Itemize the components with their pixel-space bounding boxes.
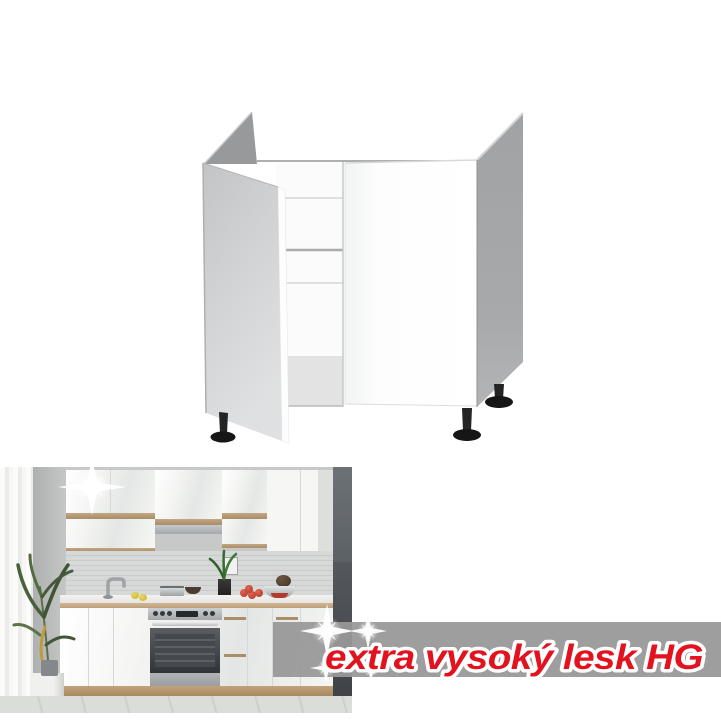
counter-plant <box>210 551 236 579</box>
promo-text-layer: extra vysoký lesk HG <box>273 622 721 677</box>
floor-plant <box>14 555 74 676</box>
cabinet-right-side-panel <box>477 113 523 407</box>
cabinet-leg-front-right <box>453 408 481 441</box>
cabinet-left-side-panel <box>204 112 257 164</box>
faucet <box>103 579 124 599</box>
cabinet-right-door <box>345 160 477 406</box>
cabinet-render <box>0 0 721 465</box>
product-image: extra vysoký lesk HG <box>0 0 721 721</box>
promo-text: extra vysoký lesk HG <box>325 638 703 677</box>
cabinet-open-door <box>203 163 289 443</box>
